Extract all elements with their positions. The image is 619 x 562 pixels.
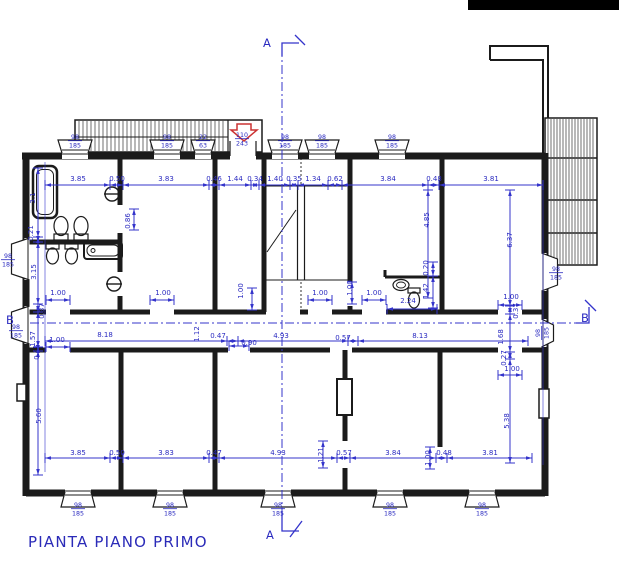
dimension-label: 4.93 <box>270 449 286 457</box>
dimension-label: 4.93 <box>273 332 289 340</box>
svg-text:185: 185 <box>272 511 284 518</box>
window-size-label: 98185 <box>278 134 292 150</box>
bath-fixtures <box>33 166 420 308</box>
svg-text:98: 98 <box>71 134 79 141</box>
dimension-label: 0.57 <box>335 334 351 342</box>
dimension-label: 0.47 <box>206 449 222 457</box>
svg-text:185: 185 <box>386 143 398 150</box>
dimension-label: 3.84 <box>380 175 396 183</box>
svg-text:98: 98 <box>478 502 486 509</box>
dimension-label: 1.42 <box>422 283 430 299</box>
svg-text:98: 98 <box>274 502 282 509</box>
section-marker-letter: A <box>266 528 274 542</box>
dimension-label: 3.85 <box>70 449 86 457</box>
dimension-label: 3.85 <box>70 175 86 183</box>
washbasin-icon <box>66 248 78 264</box>
dimension-label: 0.48 <box>436 449 452 457</box>
dimension-label: 0.47 <box>210 332 226 340</box>
floor-plan-page: 3.850.503.830.461.440.341.400.351.340.62… <box>0 0 619 562</box>
dimension-label: 3.84 <box>385 449 401 457</box>
bidet-icon <box>74 217 88 236</box>
svg-text:98: 98 <box>552 266 560 273</box>
dimension-label: 1.00 <box>49 336 65 344</box>
section-flag-a-bottom <box>282 512 302 537</box>
window-size-label: 110243 <box>235 132 249 148</box>
sink-icon <box>393 280 409 291</box>
dimension-label: 1.00 <box>312 289 328 297</box>
dimension-label: 1.00 <box>503 293 519 301</box>
exterior-walls <box>22 153 545 496</box>
top-black-bar <box>468 0 619 10</box>
dimension-label: 4.85 <box>423 212 431 228</box>
svg-text:98: 98 <box>535 329 542 337</box>
dimension-label: 0.62 <box>327 175 343 183</box>
svg-text:98: 98 <box>386 502 394 509</box>
dimension-label: 0.37 <box>512 303 520 319</box>
dimension-label: 6.37 <box>506 232 514 248</box>
dimension-label: 0.46 <box>206 175 222 183</box>
dimension-label: 5.60 <box>35 408 43 424</box>
dimension-label: 0.37 <box>38 303 46 319</box>
window-size-label: 98185 <box>549 266 563 282</box>
dimension-label: 8.13 <box>412 332 428 340</box>
svg-text:185: 185 <box>10 333 22 340</box>
dimension-label: 3.81 <box>482 449 498 457</box>
dimension-label: 0.57 <box>336 449 352 457</box>
dimension-label: 1.00 <box>155 289 171 297</box>
svg-text:22: 22 <box>199 134 207 141</box>
section-lines <box>30 35 596 537</box>
svg-text:98: 98 <box>318 134 326 141</box>
svg-text:98: 98 <box>163 134 171 141</box>
dimension-label: 3.81 <box>483 175 499 183</box>
floor-plan-drawing: 3.850.503.830.461.440.341.400.351.340.62… <box>0 0 619 562</box>
section-marker-letter: B <box>6 313 14 327</box>
dimension-label: 5.38 <box>503 413 511 429</box>
svg-text:110: 110 <box>236 132 248 139</box>
dimension-label: 0.15 <box>33 344 41 360</box>
dimension-label: 0.50 <box>109 449 125 457</box>
window-size-label: 98185 <box>535 326 551 340</box>
toilet-icon <box>54 217 68 236</box>
dimension-label: 0.48 <box>426 175 442 183</box>
dimension-label: 0.35 <box>286 175 302 183</box>
svg-text:185: 185 <box>72 511 84 518</box>
dimension-lines <box>33 162 543 475</box>
dimension-label: 1.00 <box>237 283 245 299</box>
svg-text:63: 63 <box>199 143 207 150</box>
section-flag-a-top <box>282 35 305 56</box>
dimension-label: 0.34 <box>247 175 263 183</box>
dimension-label: 3.83 <box>158 449 174 457</box>
dimension-label: 0.90 <box>241 339 257 347</box>
section-marker-letter: A <box>263 36 271 50</box>
plan-title: PIANTA PIANO PRIMO <box>28 533 208 551</box>
section-markers: AABB <box>6 36 589 542</box>
dimension-label: 1.40 <box>267 175 283 183</box>
dimension-label: 1.12 <box>193 326 201 342</box>
dimension-label: 1.00 <box>50 289 66 297</box>
dimension-label: 2.24 <box>400 297 416 305</box>
window-size-label: 98185 <box>385 134 399 150</box>
dimension-label: 0.50 <box>109 175 125 183</box>
dimension-label: 1.00 <box>424 450 432 466</box>
wall-niches <box>17 379 549 418</box>
svg-text:185: 185 <box>69 143 81 150</box>
interior-walls <box>26 156 545 493</box>
svg-text:185: 185 <box>164 511 176 518</box>
dimension-label: 8.18 <box>97 331 113 339</box>
dimension-label: 0.21 <box>27 225 35 241</box>
dimension-label: 1.21 <box>317 447 325 463</box>
svg-text:98: 98 <box>74 502 82 509</box>
window-size-label: 98185 <box>315 134 329 150</box>
svg-text:185: 185 <box>476 511 488 518</box>
dimension-label: 1.68 <box>497 329 505 345</box>
svg-text:185: 185 <box>316 143 328 150</box>
dimension-label: 1.00 <box>346 280 354 296</box>
section-marker-letter: B <box>581 311 589 325</box>
svg-text:98: 98 <box>166 502 174 509</box>
dimension-labels: 3.850.503.830.461.440.341.400.351.340.62… <box>27 175 520 466</box>
dimension-label: 0.86 <box>124 213 132 229</box>
svg-text:185: 185 <box>544 327 551 339</box>
dimension-label: 3.83 <box>158 175 174 183</box>
dimension-label: 0.20 <box>422 260 430 276</box>
svg-text:98: 98 <box>281 134 289 141</box>
svg-text:243: 243 <box>236 141 248 148</box>
svg-text:185: 185 <box>161 143 173 150</box>
svg-text:185: 185 <box>2 262 14 269</box>
dimension-label: 3.15 <box>30 264 38 280</box>
svg-text:185: 185 <box>384 511 396 518</box>
dimension-label: 3.1 <box>29 192 37 203</box>
svg-text:98: 98 <box>388 134 396 141</box>
svg-text:98: 98 <box>4 253 12 260</box>
svg-text:185: 185 <box>550 275 562 282</box>
dimension-label: 0.27 <box>500 350 508 366</box>
dimension-label: 1.44 <box>227 175 243 183</box>
dimension-label: 1.34 <box>305 175 321 183</box>
dimension-label: 1.00 <box>366 289 382 297</box>
washbasin-icon <box>47 248 59 264</box>
svg-text:185: 185 <box>279 143 291 150</box>
